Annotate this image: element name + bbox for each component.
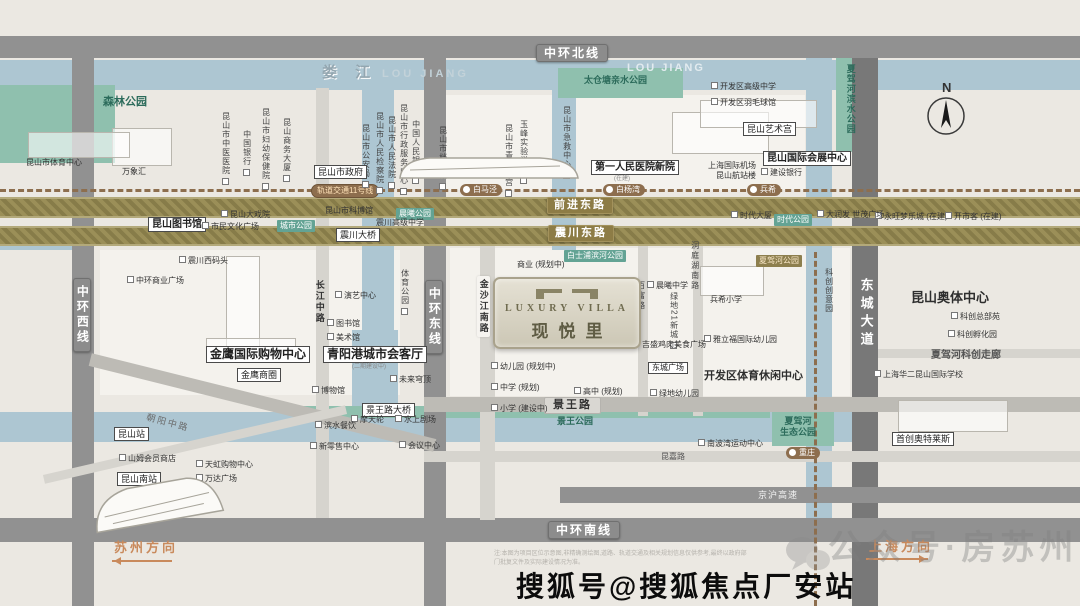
svg-text:N: N — [942, 80, 951, 95]
label-future-dome: 未来穹顶 — [390, 375, 431, 385]
label-kechuang-creative-park: 科创创意园 — [824, 268, 834, 313]
label-dongtinghu-south-road: 洞庭湖南路 — [690, 241, 700, 291]
label-forest-park: 森林公园 — [103, 96, 147, 109]
label-sports-park: 体育公园 — [400, 269, 410, 315]
label-greenland-kindergarten: 绿地幼儿园 — [650, 389, 699, 399]
label-golden-eagle-circle: 金鹰商圈 — [237, 368, 281, 382]
wechat-icon — [782, 532, 834, 578]
label-water-theatre: 水上剧场 — [395, 415, 436, 425]
label-zhenchuan-bridge: 震川大桥 — [336, 228, 380, 242]
label-high-school-planned: 高中 (规划) — [574, 387, 623, 397]
outlet-sketch — [898, 400, 1008, 432]
label-kechuang-hq: 科创总部苑 — [951, 312, 1000, 322]
property-logo-cn: 现悦里 — [522, 317, 613, 342]
station-bingxi: 兵希 — [747, 184, 781, 196]
label-kechuang-incubator: 科创孵化园 — [948, 330, 997, 340]
suzhou-direction-arrow — [112, 560, 172, 564]
label-devzone-high-school: 开发区高级中学 — [711, 82, 776, 92]
label-disclaimer: 注:本图为项目区位示意图,非精确测绘图,道路、轨道交通及相关规划信息仅供参考,最… — [494, 550, 749, 568]
badge-zhonghuan-east: 中环东线 — [425, 280, 443, 354]
badge-baishipu-park: 白士浦滨河公园 — [564, 250, 626, 262]
compass-icon: N — [920, 78, 972, 140]
property-logo-card: LUXURY VILLA 现悦里 — [493, 277, 641, 349]
label-art-museum: 美术馆 — [327, 333, 360, 343]
badge-xiajiahe-park: 夏驾河公园 — [756, 255, 802, 267]
station-chongzhuang: 重庄 — [786, 447, 820, 459]
label-jinghu-expressway: 京沪高速 — [758, 490, 798, 501]
label-suzhou-direction: 苏州方向 — [114, 540, 178, 556]
label-loujiang-en-right: LOU JIANG — [627, 62, 705, 75]
label-waterfront-dining: 滨水餐饮 — [315, 421, 356, 431]
label-xiajiahe-riverside-park: 夏驾河滨水公园 — [845, 64, 856, 134]
label-huaer-school: 上海华二昆山国际学校 — [874, 370, 963, 380]
label-kunshan-station: 昆山站 — [114, 427, 149, 441]
label-sports-leisure-center: 开发区体育休闲中心 — [704, 370, 803, 383]
label-times-tower: 时代大厦 — [731, 211, 772, 221]
watermark-gongzhonghao: 公众号·房苏州 — [828, 528, 1078, 569]
label-nanbowan-sports: 南波湾运动中心 — [698, 439, 763, 449]
label-yalifu-kindergarten: 雅立福国际幼儿园 — [704, 335, 777, 345]
badge-city-park: 城市公园 — [277, 220, 315, 232]
label-zhenchuan-west-wharf: 震川西码头 — [179, 256, 228, 266]
label-devzone-badminton: 开发区羽毛球馆 — [711, 98, 776, 108]
label-business-tower: 昆山商务大厦 — [282, 118, 292, 182]
label-changjiang-mid-road: 长江中路 — [314, 280, 325, 324]
station-baiyangwan: 白杨湾 — [603, 184, 645, 196]
label-jinshajiang-south-road: 金沙江南路 — [477, 276, 490, 337]
label-rt-mart: 大润发 世茂广场 — [817, 210, 884, 220]
jinghu-expressway-road — [560, 487, 1080, 503]
label-primary-school-planned: 小学 (建设中) — [491, 404, 548, 414]
label-museum: 博物馆 — [312, 386, 345, 396]
location-map: 中环北线中环南线中环西线中环东线东城大道前进东路震川东路轨道交通11号线白马泾白… — [0, 0, 1080, 606]
label-zhonghuan-biz-plaza: 中环商业广场 — [127, 276, 184, 286]
label-new-retail-center: 新零售中心 — [310, 442, 359, 452]
badge-zhenchuan-east-road: 震川东路 — [548, 225, 614, 242]
badge-qianjin-east-road: 前进东路 — [547, 197, 613, 214]
label-commercial-planned: 商业 (规划中) — [517, 260, 565, 270]
label-kunshan-library: 昆山图书馆 — [148, 217, 206, 232]
river-loujiang — [0, 60, 1080, 90]
label-xiajiahe-eco-park: 夏驾河 生态公园 — [780, 416, 816, 438]
badge-zhonghuan-north: 中环北线 — [536, 44, 608, 62]
bingxi-school-sketch — [700, 266, 764, 296]
label-zhongyi-hospital: 昆山市中医医院 — [221, 112, 231, 185]
label-qingyanggang-hall: 青阳港城市会客厅 — [323, 346, 427, 363]
label-first-peoples-hospital: 第一人民医院新院 — [591, 160, 679, 175]
label-library: 图书馆 — [327, 319, 360, 329]
label-sports-center: 昆山市体育中心 — [26, 158, 82, 168]
label-conference-center: 会议中心 — [399, 441, 440, 451]
label-expo-center: 昆山国际会展中心 — [763, 151, 851, 166]
label-dongcheng-avenue: 东城大道 — [858, 278, 874, 350]
label-loujiang-cn: 娄 江 — [322, 64, 377, 82]
label-hospital-note: (在建) — [614, 176, 630, 183]
golden-eagle-tower-sketch — [226, 256, 260, 348]
label-science-museum: 昆山市科博馆 — [325, 206, 373, 216]
label-kunjia-road: 昆嘉路 — [661, 452, 685, 462]
label-kunshan-theatre: 昆山大戏院 — [221, 210, 270, 220]
label-sams-club: 山姆会员商店 — [119, 454, 176, 464]
label-art-palace: 昆山艺术宫 — [743, 122, 796, 136]
label-shouchuang-outlet: 首创奥特莱斯 — [892, 432, 954, 446]
label-jingwang-park: 景王公园 — [557, 416, 593, 427]
train-sketch-icon — [390, 148, 580, 190]
label-fuyou-hospital: 昆山市妇幼保健院 — [261, 108, 271, 190]
label-ccb-bank: 建设银行 — [761, 168, 802, 178]
property-logo-icon — [532, 284, 602, 300]
label-civic-culture-plaza: 市民文化广场 — [202, 222, 259, 232]
label-procuratorate: 昆山市人民检察院 — [375, 112, 385, 194]
label-kunshan-government: 昆山市政府 — [314, 165, 367, 179]
badge-times-park: 时代公园 — [774, 214, 812, 226]
badge-zhonghuan-south: 中环南线 — [548, 521, 620, 539]
label-food-plaza: 吉盛鸡肉美食广场 — [642, 340, 706, 350]
label-qingyanggang-note: (二期建设中) — [352, 364, 386, 371]
label-costco: 开市客 (在建) — [945, 212, 1002, 222]
label-loujiang-en-left: LOU JIANG — [382, 68, 469, 81]
sports-center-sketch — [28, 132, 130, 158]
label-taicangtang-park: 太仓塘亲水公园 — [584, 75, 647, 86]
label-middle-school-planned: 中学 (规划) — [491, 383, 540, 393]
label-aoti-center: 昆山奥体中心 — [911, 290, 989, 306]
label-kindergarten-planned: 幼儿园 (规划中) — [491, 362, 556, 372]
label-chenxi-middle-school: 晨曦中学 — [647, 281, 688, 291]
label-kechuang-corridor: 夏驾河科创走廊 — [931, 350, 1001, 362]
property-logo-en: LUXURY VILLA — [505, 303, 629, 314]
label-aeon-mall: 永旺梦乐城 (在建) — [875, 212, 948, 222]
label-wanxianghui: 万象汇 — [122, 167, 146, 177]
label-performing-arts-center: 演艺中心 — [335, 291, 376, 301]
label-golden-eagle-mall: 金鹰国际购物中心 — [206, 346, 310, 363]
badge-jingwang-road: 景王路 — [544, 397, 601, 414]
label-bingxi-primary: 兵希小学 — [710, 295, 742, 305]
badge-zhonghuan-west: 中环西线 — [73, 278, 91, 352]
label-zhenchuan-high-school: 震川高级中学 — [376, 218, 424, 228]
label-airport-terminal: 上海国际机场 昆山航站楼 — [708, 161, 756, 180]
label-bank-of-china: 中国银行 — [242, 130, 252, 176]
label-dongcheng-plaza: 东城广场 — [648, 362, 688, 374]
kunjia-road — [424, 451, 1080, 462]
